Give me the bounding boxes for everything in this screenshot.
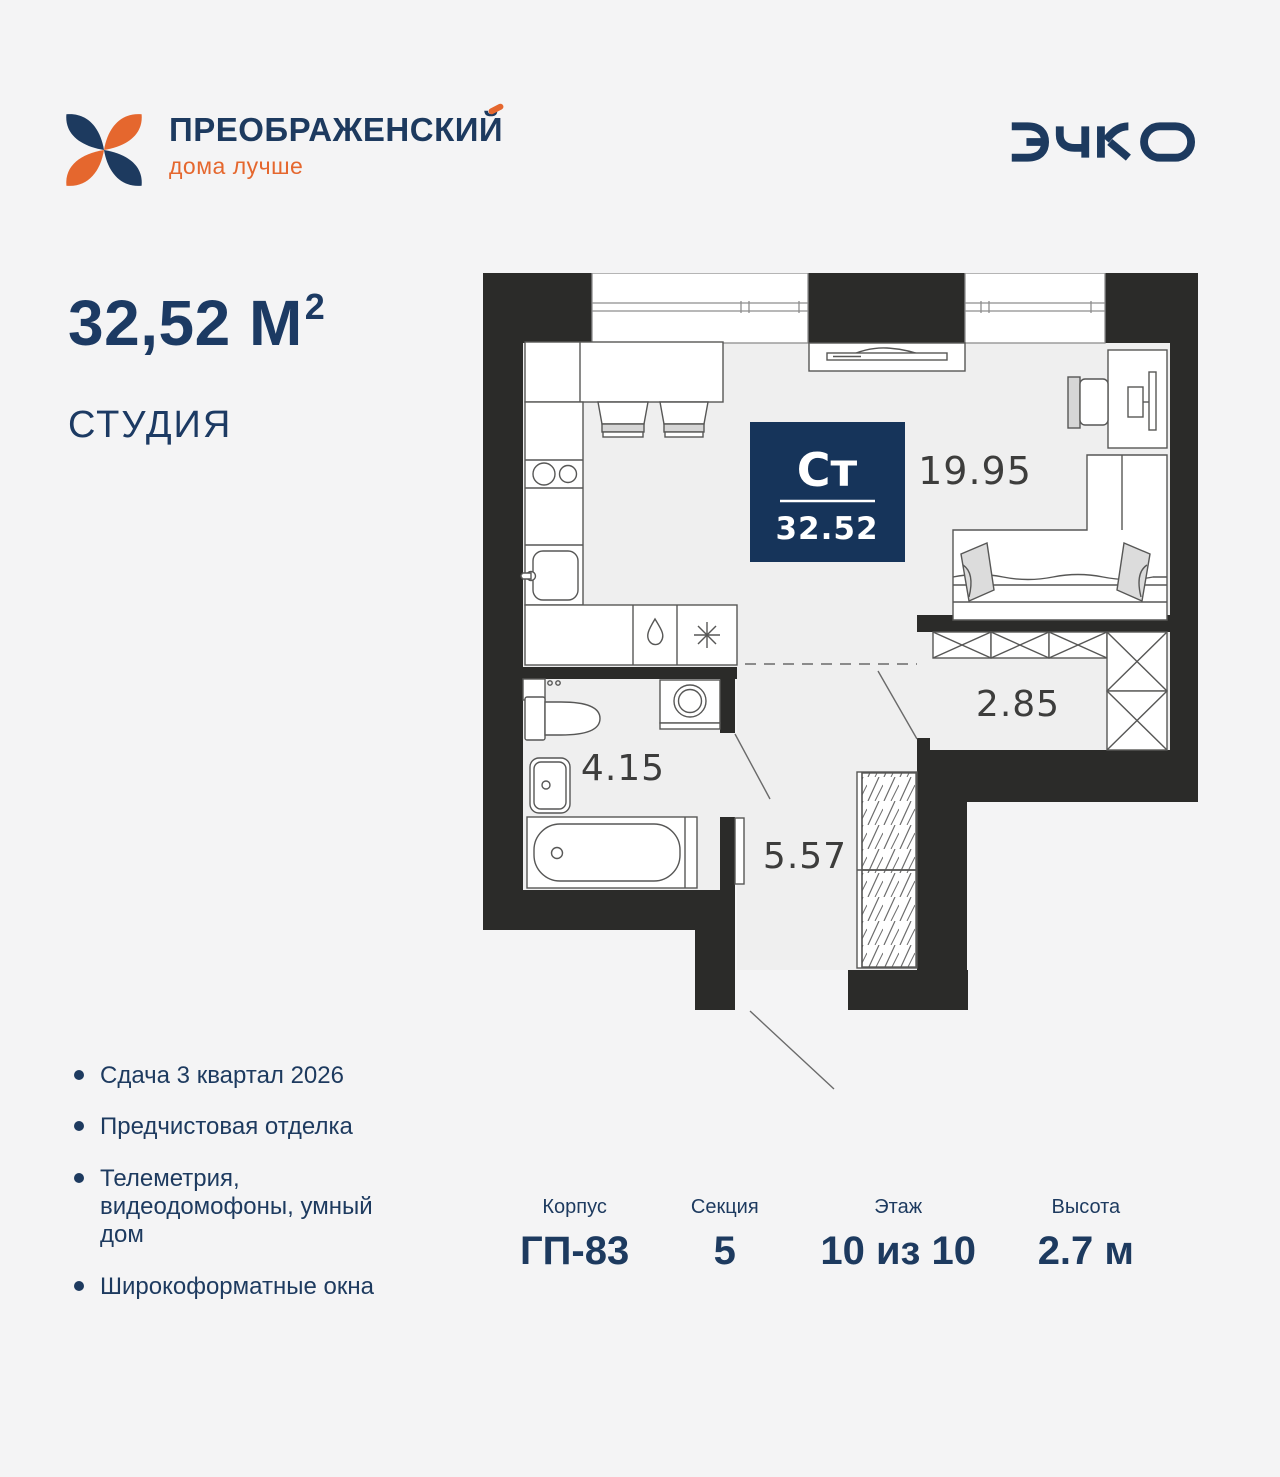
bar-stool [598, 402, 648, 437]
floorplan: 19.95 2.85 4.15 5.57 Ст 32.52 [483, 273, 1198, 1100]
tv-unit [809, 343, 965, 371]
detail-etazh: Этаж 10 из 10 [820, 1196, 976, 1274]
detail-label: Этаж [874, 1196, 922, 1219]
area-exponent: 2 [305, 286, 326, 327]
bathroom-door-leaf [735, 818, 744, 884]
detail-value: 2.7 м [1038, 1229, 1134, 1274]
feature-item: Телеметрия, видеодомофоны, умный дом [100, 1165, 400, 1250]
entry-door-swing [750, 1011, 834, 1089]
office-chair [1068, 377, 1108, 428]
area-badge: Ст 32.52 [750, 422, 905, 562]
bathroom-sink [530, 758, 570, 813]
enko-letter-o [1144, 126, 1191, 157]
detail-korpus: Корпус ГП-83 [520, 1196, 629, 1274]
kitchen-counter-top [525, 342, 723, 402]
room-label-wardrobe: 2.85 [976, 684, 1060, 725]
details-row: Корпус ГП-83 Секция 5 Этаж 10 из 10 Высо… [520, 1196, 1134, 1274]
brand-name: ПРЕОБРАЖЕНСКИЙ [169, 113, 503, 146]
wardrobe-hatched [857, 772, 917, 968]
brand-text: ПРЕОБРАЖЕНСКИЙ дома лучше [169, 103, 503, 180]
bullet-dot-icon [74, 1070, 84, 1080]
feature-text: Предчистовая отделка [100, 1113, 353, 1140]
room-label-living: 19.95 [918, 449, 1032, 493]
feature-item: Предчистовая отделка [100, 1113, 400, 1141]
apartment-area-title: 32,52 М2 [68, 288, 323, 358]
desk [1108, 350, 1167, 448]
detail-value: ГП-83 [520, 1229, 629, 1274]
enko-logo: ЭНКО [1000, 118, 1196, 166]
feature-text: Телеметрия, видеодомофоны, умный дом [100, 1165, 373, 1249]
brand-flower-icon [57, 103, 151, 197]
brand-name-text: ПРЕОБРАЖЕНСКИЙ [169, 111, 503, 148]
window [965, 273, 1105, 343]
feature-text: Широкоформатные окна [100, 1273, 374, 1300]
detail-sekcia: Секция 5 [691, 1196, 759, 1274]
window [592, 273, 808, 343]
detail-label: Корпус [542, 1196, 607, 1219]
badge-area: 32.52 [775, 511, 878, 547]
feature-text: Сдача 3 квартал 2026 [100, 1062, 344, 1089]
detail-value: 5 [714, 1229, 736, 1274]
page: ПРЕОБРАЖЕНСКИЙ дома лучше ЭНКО 32,52 М2 … [0, 0, 1280, 1477]
features-list: Сдача 3 квартал 2026 Предчистовая отделк… [100, 1062, 400, 1324]
washing-machine [660, 680, 720, 729]
bullet-dot-icon [74, 1173, 84, 1183]
brand-logo: ПРЕОБРАЖЕНСКИЙ дома лучше [57, 103, 503, 197]
bullet-dot-icon [74, 1121, 84, 1131]
detail-label: Секция [691, 1196, 759, 1219]
enko-letter-k-arm [1106, 126, 1129, 140]
bullet-dot-icon [74, 1281, 84, 1291]
feature-item: Сдача 3 квартал 2026 [100, 1062, 400, 1090]
room-label-hallway: 5.57 [763, 836, 847, 877]
detail-vysota: Высота 2.7 м [1038, 1196, 1134, 1274]
bathtub [527, 817, 697, 888]
apartment-type-title: СТУДИЯ [68, 404, 232, 447]
detail-label: Высота [1052, 1196, 1121, 1219]
enko-letter-k-leg [1110, 142, 1129, 158]
brand-tagline: дома лучше [169, 153, 503, 180]
area-value: 32,52 М [68, 287, 303, 359]
bar-stool [660, 402, 708, 437]
room-label-bathroom: 4.15 [581, 748, 665, 789]
feature-item: Широкоформатные окна [100, 1273, 400, 1301]
badge-type: Ст [797, 443, 858, 497]
detail-value: 10 из 10 [820, 1229, 976, 1274]
